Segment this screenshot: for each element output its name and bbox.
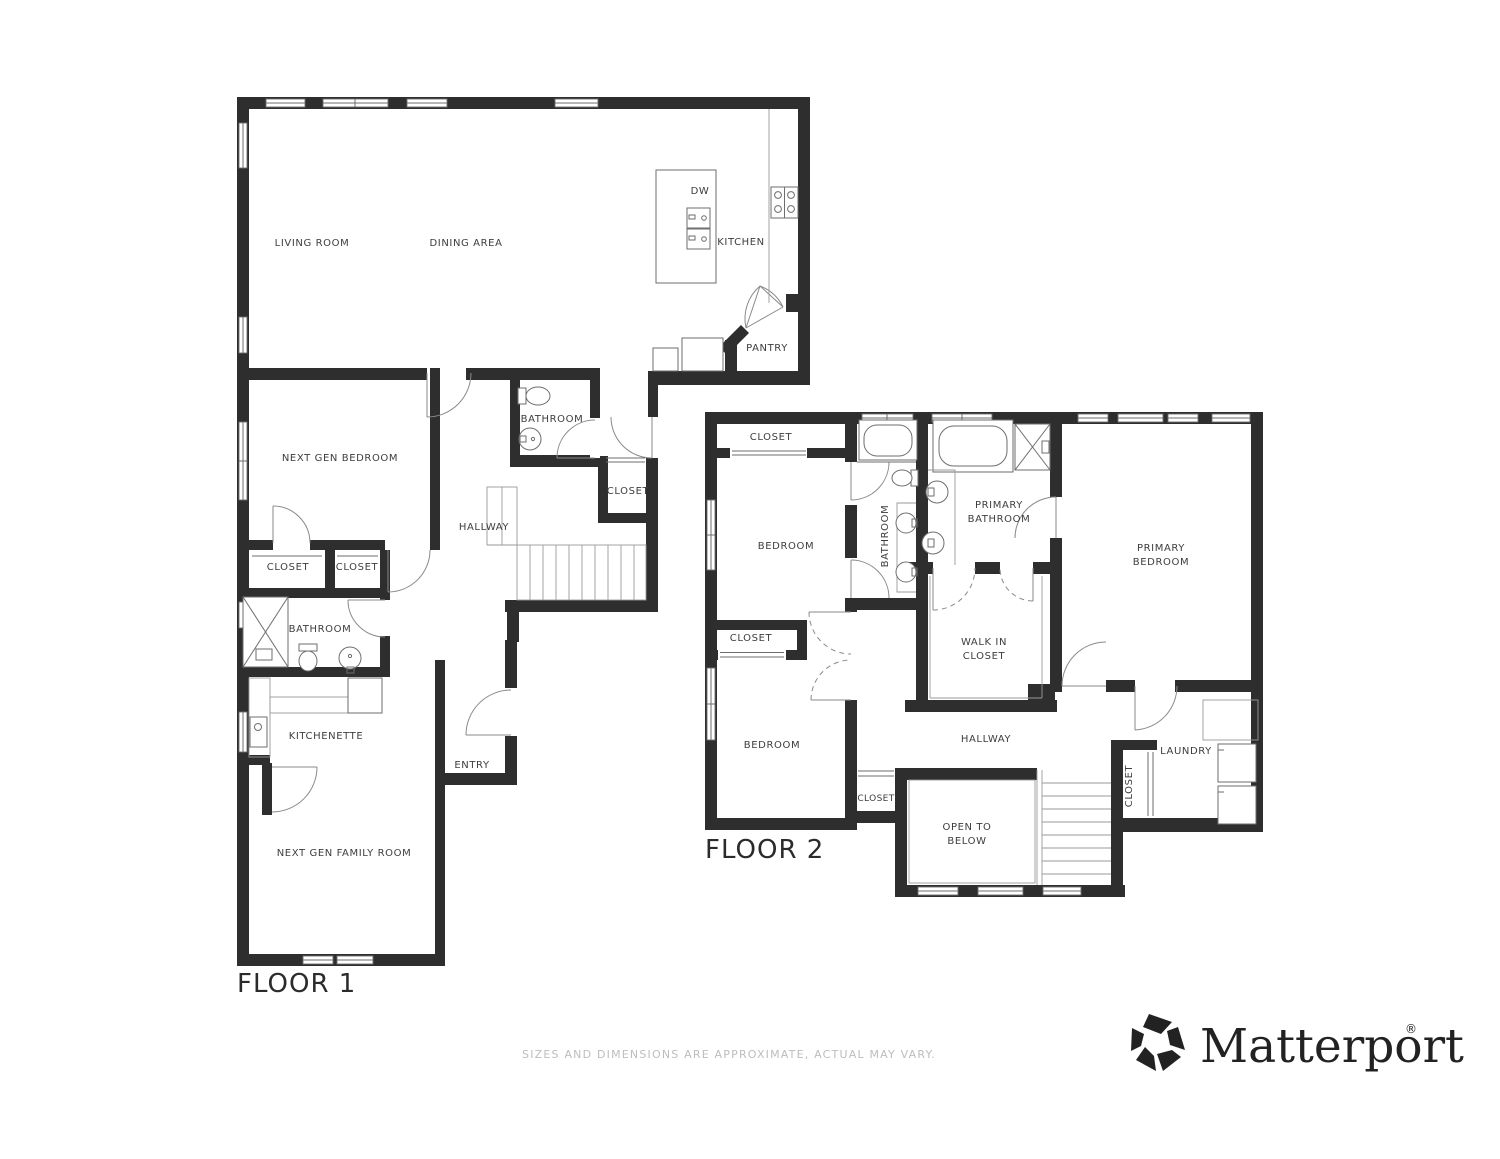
label-primary-bathroom-1: PRIMARY — [975, 500, 1023, 511]
label-pantry: PANTRY — [746, 343, 788, 354]
label-hall-closet: CLOSET — [607, 486, 650, 497]
label-next-gen-family-room: NEXT GEN FAMILY ROOM — [277, 848, 412, 859]
label-bedroom-2: BEDROOM — [744, 740, 800, 751]
floor1-windows — [239, 99, 598, 964]
laundry-fixtures — [1203, 700, 1258, 824]
hall-bathtub — [857, 420, 917, 462]
label-kitchen: KITCHEN — [717, 237, 765, 248]
label-primary-bedroom-1: PRIMARY — [1137, 543, 1185, 554]
label-kitchenette: KITCHENETTE — [289, 731, 364, 742]
kitchenette-fixtures — [249, 678, 382, 757]
bathroom2-fixtures — [243, 597, 361, 673]
label-bathroom-f2: BATHROOM — [880, 505, 891, 568]
label-next-gen-bedroom: NEXT GEN BEDROOM — [282, 453, 398, 464]
floor2-doors — [720, 451, 1177, 816]
floor2-stairs — [909, 770, 1111, 885]
primary-shower — [1015, 424, 1050, 470]
label-closet-top: CLOSET — [750, 432, 793, 443]
label-closet-hall-f2: CLOSET — [857, 794, 894, 804]
floor1-title: FLOOR 1 — [237, 969, 356, 999]
primary-bathtub — [933, 420, 1013, 472]
label-bathroom-1: BATHROOM — [521, 414, 584, 425]
label-laundry: LAUNDRY — [1160, 746, 1212, 757]
label-closet-a: CLOSET — [267, 562, 310, 573]
label-closet-stairs: CLOSET — [1124, 764, 1135, 807]
label-hallway-2: HALLWAY — [961, 734, 1012, 745]
refrigerator — [682, 338, 723, 371]
label-dining-area: DINING AREA — [429, 238, 502, 249]
label-primary-bathroom-2: BATHROOM — [968, 514, 1031, 525]
label-open-to-below-2: BELOW — [947, 836, 986, 847]
matterport-wordmark: Matterport — [1200, 1019, 1464, 1074]
label-dishwasher: DW — [691, 186, 710, 197]
label-entry: ENTRY — [454, 760, 490, 771]
label-open-to-below-1: OPEN TO — [942, 822, 991, 833]
label-closet-b: CLOSET — [336, 562, 379, 573]
stove-icon — [771, 187, 798, 218]
label-walk-in-closet-2: CLOSET — [963, 651, 1006, 662]
floor2-labels: CLOSET BEDROOM BATHROOM PRIMARY BATHROOM… — [705, 432, 1212, 865]
label-bedroom-1: BEDROOM — [758, 541, 814, 552]
label-living-room: LIVING ROOM — [275, 238, 350, 249]
hall-bath-sinks — [896, 503, 917, 592]
floor2-title: FLOOR 2 — [705, 835, 824, 865]
hall-toilet — [892, 470, 918, 486]
appliance-box — [653, 348, 678, 371]
label-primary-bedroom-2: BEDROOM — [1133, 557, 1189, 568]
label-bathroom-2: BATHROOM — [289, 624, 352, 635]
label-closet-mid: CLOSET — [730, 633, 773, 644]
disclaimer-text: SIZES AND DIMENSIONS ARE APPROXIMATE, AC… — [522, 1048, 936, 1061]
footer: SIZES AND DIMENSIONS ARE APPROXIMATE, AC… — [522, 1014, 1464, 1074]
label-walk-in-closet-1: WALK IN — [961, 637, 1007, 648]
registered-trademark: ® — [1405, 1022, 1417, 1036]
floor1-stairs — [487, 487, 646, 600]
matterport-logo-icon — [1131, 1014, 1185, 1071]
floor-plan-canvas: LIVING ROOM DINING AREA KITCHEN DW PANTR… — [0, 0, 1500, 1159]
label-hallway-1: HALLWAY — [459, 522, 510, 533]
floor-plan-page: LIVING ROOM DINING AREA KITCHEN DW PANTR… — [0, 0, 1500, 1159]
